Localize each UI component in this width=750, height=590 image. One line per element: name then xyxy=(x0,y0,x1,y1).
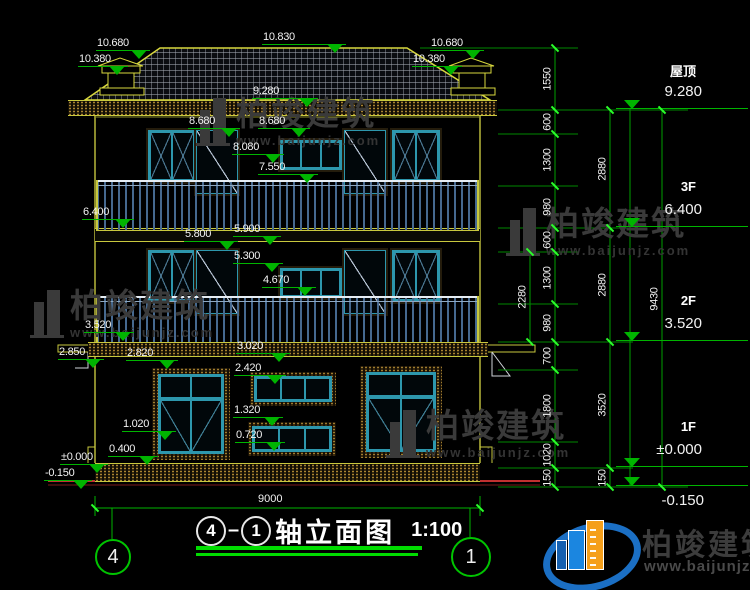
elevation-marker: 10.380 xyxy=(78,51,128,67)
storey-name: 3F xyxy=(681,179,696,194)
elevation-marker: 8.080 xyxy=(232,139,284,155)
company-logo: 柏竣建筑 www.baijunjz.com xyxy=(540,514,750,586)
title-underline-2 xyxy=(196,553,418,556)
title-underline-1 xyxy=(196,546,422,550)
elevation-marker: 0.400 xyxy=(108,441,158,457)
watermark-url: www.baijunjz.com xyxy=(546,243,690,258)
watermark-building-icon xyxy=(386,408,420,458)
elevation-marker-label: 9.280 xyxy=(253,86,279,97)
watermark-building-icon xyxy=(30,288,64,338)
elevation-marker-label: 10.680 xyxy=(431,38,463,49)
watermark-building-icon xyxy=(506,206,540,256)
elevation-marker: 10.380 xyxy=(412,51,462,67)
elevation-marker-label: 10.380 xyxy=(79,54,111,65)
elevation-marker-label: -0.150 xyxy=(45,468,74,479)
dim-chain-segment: 9430 xyxy=(648,110,662,487)
elevation-marker-triangle xyxy=(299,98,315,107)
window-leaf xyxy=(416,132,438,180)
balcony-railing xyxy=(97,180,478,231)
elevation-marker: 10.680 xyxy=(430,35,484,51)
elevation-marker-triangle xyxy=(115,219,131,228)
dim-chain-value: 1550 xyxy=(542,67,554,90)
elevation-marker-triangle xyxy=(159,360,175,369)
elevation-marker-triangle xyxy=(157,431,173,440)
elevation-marker-triangle xyxy=(264,417,280,426)
storey-marker-triangle xyxy=(624,477,640,486)
elevation-marker: 3.520 xyxy=(84,317,134,333)
elevation-marker-label: 2.420 xyxy=(235,363,261,374)
elevation-marker: 2.820 xyxy=(126,345,178,361)
grid-bubble-1: 1 xyxy=(451,537,491,577)
elevation-marker-triangle xyxy=(264,263,280,272)
window-casement xyxy=(392,130,440,182)
dim-chain-segment: 980 xyxy=(541,304,555,342)
elevation-marker-triangle xyxy=(262,236,278,245)
elevation-marker-label: 10.380 xyxy=(413,54,445,65)
dim-chain-value: 2880 xyxy=(597,157,609,180)
elevation-marker: 1.320 xyxy=(233,402,283,418)
storey-marker-triangle xyxy=(624,458,640,467)
elevation-marker: 3.020 xyxy=(236,338,290,354)
storey-level-marker: 1F ±0.000 xyxy=(616,466,748,467)
elevation-marker-label: 5.800 xyxy=(185,229,211,240)
storey-elevation-value: ±0.000 xyxy=(656,441,702,458)
elevation-marker-label: 5.300 xyxy=(234,251,260,262)
dim-chain-segment: 2880 xyxy=(596,228,610,342)
elevation-marker-label: 10.830 xyxy=(263,32,295,43)
dim-chain-value: 2880 xyxy=(597,273,609,296)
elevation-drawing-canvas: 柏竣建筑 www.baijunjz.com 柏竣建筑 www.baijunjz.… xyxy=(0,0,750,590)
dim-chain-segment: 1800 xyxy=(541,370,555,442)
window-leaf xyxy=(150,132,172,180)
elevation-marker: 2.420 xyxy=(234,360,286,376)
window-leaf xyxy=(394,252,416,300)
elevation-marker-triangle xyxy=(73,480,89,489)
elevation-marker-label: 5.900 xyxy=(234,224,260,235)
elevation-marker-triangle xyxy=(109,66,125,75)
elevation-marker: 10.830 xyxy=(262,29,346,45)
elevation-marker-triangle xyxy=(85,359,101,368)
dim-chain-value: 600 xyxy=(542,113,554,130)
window-frame xyxy=(254,376,332,402)
elevation-marker-triangle xyxy=(443,66,459,75)
elevation-marker-label: 1.320 xyxy=(234,405,260,416)
dim-chain-segment: 2280 xyxy=(516,252,530,342)
logo-url: www.baijunjz.com xyxy=(644,558,750,575)
elevation-marker-triangle xyxy=(465,50,481,59)
dim-chain-segment: 2880 xyxy=(596,110,610,228)
speckled-band xyxy=(95,463,480,482)
window-1f-large xyxy=(152,368,230,460)
axis-bubble-from: 4 xyxy=(196,516,226,546)
elevation-marker-label: 8.680 xyxy=(259,116,285,127)
window-pane xyxy=(321,270,340,296)
storey-level-marker: 屋顶 9.280 xyxy=(616,108,748,109)
storey-name: 2F xyxy=(681,293,696,308)
elevation-marker-label: ±0.000 xyxy=(61,452,93,463)
title-scale: 1:100 xyxy=(411,519,462,542)
elevation-marker-label: 4.670 xyxy=(263,275,289,286)
elevation-marker: -0.150 xyxy=(44,465,92,481)
elevation-marker: ±0.000 xyxy=(60,449,108,465)
window-top-row xyxy=(368,374,434,398)
elevation-marker-label: 2.850 xyxy=(59,347,85,358)
elevation-marker: 7.550 xyxy=(258,159,318,175)
dim-chain-value: 9430 xyxy=(649,287,661,310)
elevation-marker-label: 3.520 xyxy=(85,320,111,331)
dim-chain-value: 3520 xyxy=(597,393,609,416)
storey-elevation-value: 9.280 xyxy=(664,83,702,100)
elevation-marker-label: 2.820 xyxy=(127,348,153,359)
dim-chain-value: 1800 xyxy=(542,394,554,417)
dim-chain-value: 1300 xyxy=(542,266,554,289)
elevation-marker-triangle xyxy=(139,456,155,465)
elevation-marker: 2.850 xyxy=(58,344,104,360)
logo-building-blue xyxy=(568,530,585,570)
elevation-marker-label: 7.550 xyxy=(259,162,285,173)
elevation-marker-triangle xyxy=(327,44,343,53)
elevation-marker-triangle xyxy=(266,442,282,451)
elevation-marker-triangle xyxy=(291,128,307,137)
elevation-marker-triangle xyxy=(299,174,315,183)
logo-building-small xyxy=(556,540,567,570)
elevation-marker: 1.020 xyxy=(122,416,176,432)
overall-width-dim: 9000 xyxy=(258,493,282,505)
dim-chain-value: 600 xyxy=(542,231,554,248)
storey-marker-triangle xyxy=(624,332,640,341)
dim-chain-segment: 1300 xyxy=(541,134,555,186)
window-frame xyxy=(158,374,224,454)
storey-marker-triangle xyxy=(624,218,640,227)
elevation-marker-triangle xyxy=(267,375,283,384)
elevation-marker-label: 0.400 xyxy=(109,444,135,455)
dim-chain-segment: 980 xyxy=(541,186,555,228)
axis-dash: – xyxy=(228,519,239,542)
drawing-title: 4 – 1 轴立面图 1:100 xyxy=(196,511,462,550)
elevation-marker-label: 10.680 xyxy=(97,38,129,49)
dim-chain-value: 1300 xyxy=(542,148,554,171)
window-leaf xyxy=(172,132,194,180)
elevation-marker-triangle xyxy=(131,50,147,59)
dim-chain-value: 2280 xyxy=(517,285,529,308)
elevation-marker-label: 1.020 xyxy=(123,419,149,430)
storey-name: 1F xyxy=(681,419,696,434)
dim-chain-segment: 3520 xyxy=(596,342,610,468)
elevation-marker: 5.800 xyxy=(184,226,238,242)
elevation-marker: 8.680 xyxy=(258,113,310,129)
title-text: 轴立面图 xyxy=(275,511,395,550)
window-casement xyxy=(392,250,440,302)
storey-elevation-value: 3.520 xyxy=(664,315,702,332)
window-1f-small xyxy=(250,372,336,406)
elevation-marker-label: 6.400 xyxy=(83,207,109,218)
elevation-marker: 4.670 xyxy=(262,272,316,288)
elevation-marker: 9.280 xyxy=(252,83,318,99)
dim-chain-value: 980 xyxy=(542,198,554,215)
elevation-marker-label: 0.720 xyxy=(236,430,262,441)
elevation-marker: 5.300 xyxy=(233,248,283,264)
storey-level-marker: -0.150 xyxy=(616,485,748,486)
window-leaf xyxy=(394,132,416,180)
dim-chain-segment: 1300 xyxy=(541,252,555,304)
storey-level-marker: 3F 6.400 xyxy=(616,226,748,227)
elevation-marker-triangle xyxy=(221,128,237,137)
storey-elevation-value: 6.400 xyxy=(664,201,702,218)
side-canopy-right xyxy=(480,345,535,376)
elevation-marker: 0.720 xyxy=(235,427,285,443)
elevation-marker: 5.900 xyxy=(233,221,281,237)
storey-level-marker: 2F 3.520 xyxy=(616,340,748,341)
elevation-marker: 10.680 xyxy=(96,35,150,51)
storey-marker-triangle xyxy=(624,100,640,109)
window-leaf xyxy=(416,252,438,300)
storey-name: 屋顶 xyxy=(670,61,696,80)
elevation-marker-triangle xyxy=(115,332,131,341)
window-top-row xyxy=(160,376,222,400)
storey-elevation-below: -0.150 xyxy=(661,492,704,509)
logo-building-orange xyxy=(586,520,604,570)
window-casement xyxy=(148,130,196,182)
elevation-marker-label: 8.080 xyxy=(233,142,259,153)
dim-chain-segment: 1550 xyxy=(541,48,555,110)
dim-chain-value: 980 xyxy=(542,314,554,331)
dim-chain-value: 700 xyxy=(542,347,554,364)
grid-bubble-4: 4 xyxy=(95,539,131,575)
elevation-marker-label: 8.680 xyxy=(189,116,215,127)
elevation-marker: 8.680 xyxy=(188,113,240,129)
axis-bubble-to: 1 xyxy=(241,516,271,546)
elevation-marker-label: 3.020 xyxy=(237,341,263,352)
elevation-marker-triangle xyxy=(297,287,313,296)
elevation-marker: 6.400 xyxy=(82,204,134,220)
